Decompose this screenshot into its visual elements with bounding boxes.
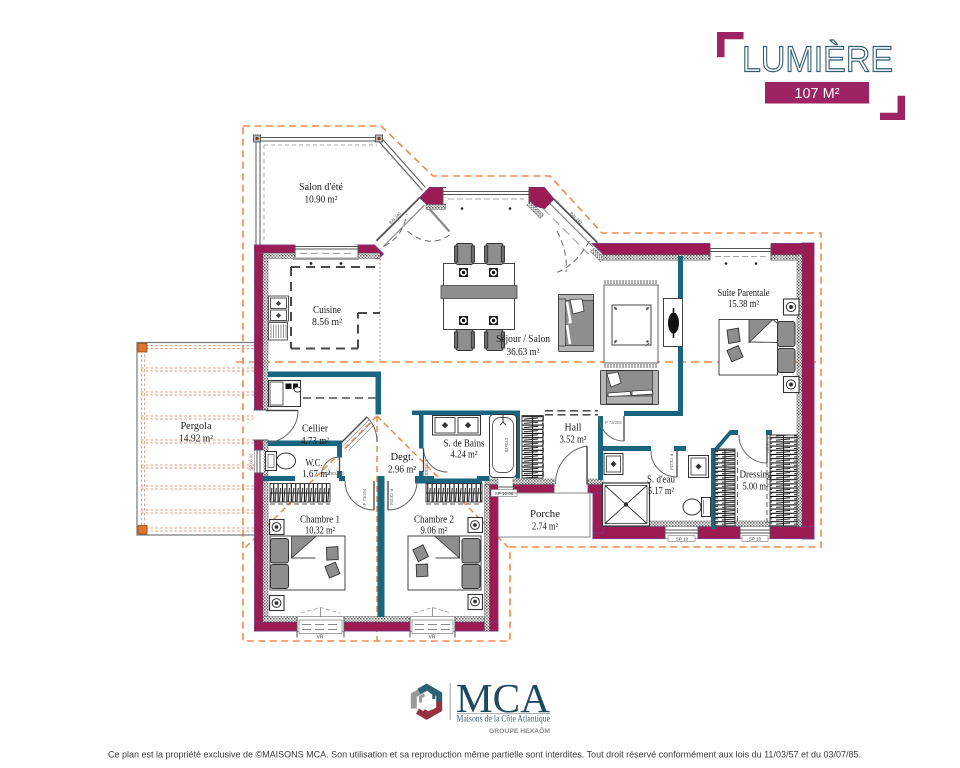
svg-text:SP 06 06: SP 06 06 <box>249 453 254 471</box>
svg-text:P 73/204: P 73/204 <box>605 420 622 425</box>
svg-text:5.17 m²: 5.17 m² <box>648 486 674 497</box>
svg-text:SP 10: SP 10 <box>749 537 762 542</box>
svg-text:Cellier: Cellier <box>302 424 329 435</box>
svg-text:9.06 m²: 9.06 m² <box>421 526 448 537</box>
svg-text:Séjour / Salon: Séjour / Salon <box>496 334 550 345</box>
svg-text:Maisons de la Côte Atlantique: Maisons de la Côte Atlantique <box>457 715 551 725</box>
svg-text:3.52 m²: 3.52 m² <box>560 435 587 446</box>
svg-text:4.24 m²: 4.24 m² <box>451 450 478 461</box>
svg-text:8.56 m²: 8.56 m² <box>312 317 342 328</box>
svg-text:Chambre 1: Chambre 1 <box>300 515 340 526</box>
svg-text:4.73 m²: 4.73 m² <box>301 436 329 447</box>
svg-text:VR: VR <box>429 635 436 641</box>
svg-text:Suite Parentale: Suite Parentale <box>718 288 770 299</box>
svg-text:S. d'eau: S. d'eau <box>647 475 675 486</box>
svg-text:Porche: Porche <box>530 509 561 520</box>
svg-text:Salon d'été: Salon d'été <box>299 182 344 193</box>
svg-text:Degt.: Degt. <box>391 452 414 463</box>
svg-text:10.90 m²: 10.90 m² <box>305 195 338 206</box>
svg-text:P 73/204: P 73/204 <box>669 454 674 471</box>
svg-text:Chambre 2: Chambre 2 <box>414 515 454 526</box>
svg-text:S. de Bains: S. de Bains <box>444 439 485 450</box>
svg-text:107 M²: 107 M² <box>794 86 839 102</box>
svg-text:5.00 m²: 5.00 m² <box>743 482 769 493</box>
svg-text:BAI 240: BAI 240 <box>569 211 584 226</box>
svg-text:LUMIÈRE: LUMIÈRE <box>742 39 893 80</box>
svg-text:MODELE d: MODELE d <box>322 471 344 476</box>
svg-text:2.74 m²: 2.74 m² <box>532 522 558 533</box>
svg-text:Dressing: Dressing <box>740 470 772 481</box>
svg-text:MODELE d: MODELE d <box>424 459 429 481</box>
svg-text:VR: VR <box>317 635 324 641</box>
svg-text:Ce plan est la propriété exclu: Ce plan est la propriété exclusive de ©M… <box>108 750 861 760</box>
svg-text:Cuisine: Cuisine <box>313 305 342 316</box>
svg-text:P 73/204: P 73/204 <box>389 489 394 506</box>
svg-text:SP 10: SP 10 <box>676 537 689 542</box>
svg-text:170x75: 170x75 <box>504 438 509 453</box>
svg-text:Hall: Hall <box>565 423 582 434</box>
svg-text:10.32 m²: 10.32 m² <box>305 526 335 537</box>
svg-text:15.38 m²: 15.38 m² <box>728 299 759 310</box>
svg-text:P 73/204: P 73/204 <box>765 437 770 454</box>
svg-text:Pergola: Pergola <box>181 421 213 432</box>
svg-text:W.C.: W.C. <box>306 458 323 469</box>
svg-text:36.63 m²: 36.63 m² <box>507 347 540 358</box>
svg-text:GROUPE HEXAÔM: GROUPE HEXAÔM <box>489 726 550 735</box>
svg-text:P 73/204: P 73/204 <box>362 488 367 505</box>
svg-text:14.92 m²: 14.92 m² <box>179 434 213 445</box>
svg-text:2.96 m²: 2.96 m² <box>388 465 416 476</box>
